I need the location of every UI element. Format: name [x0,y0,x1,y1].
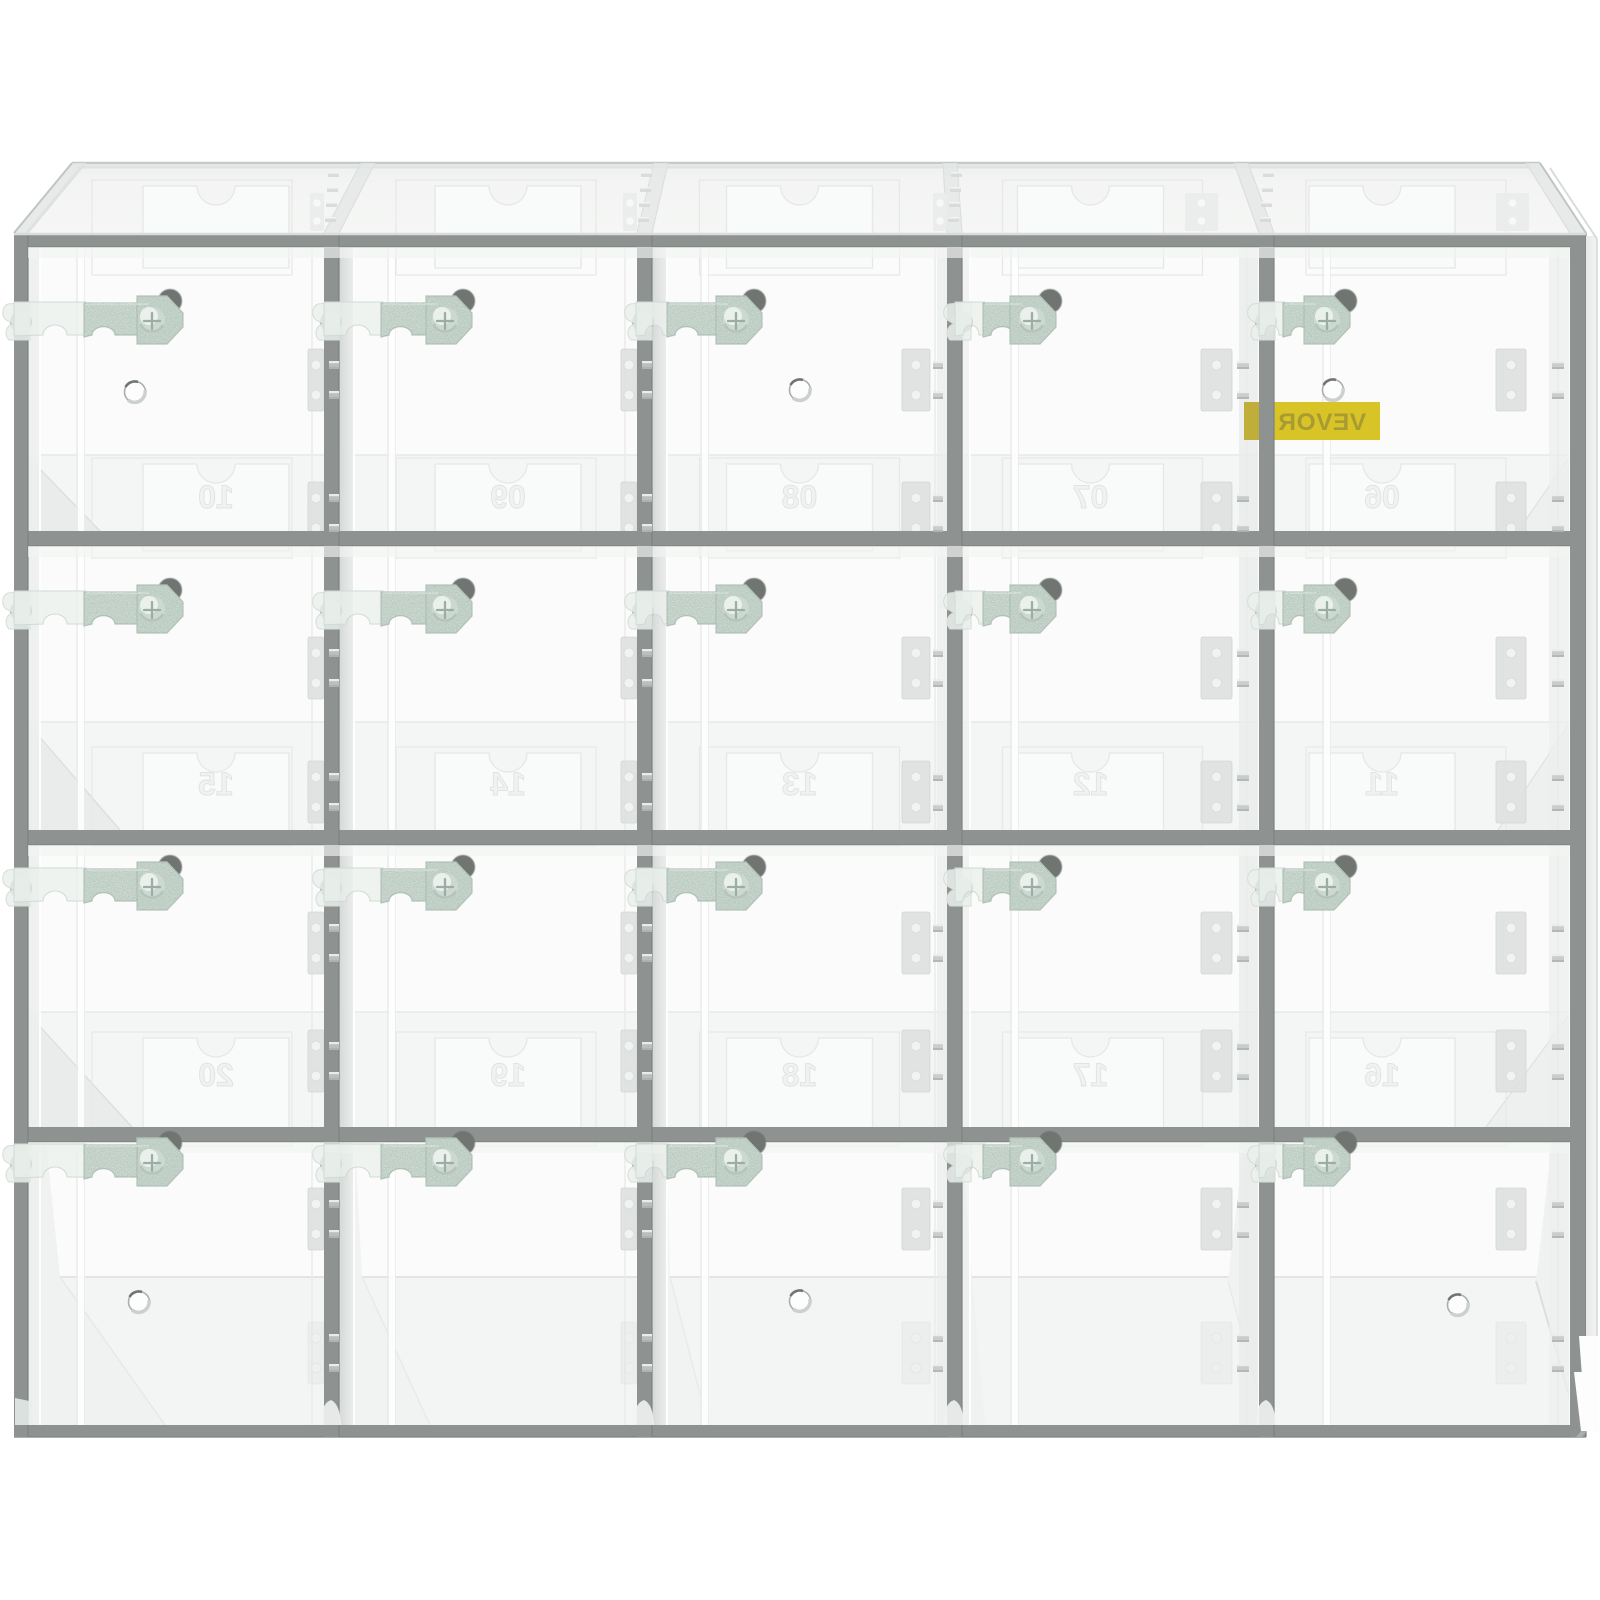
svg-text:06: 06 [1364,479,1400,515]
svg-text:16: 16 [1364,1057,1400,1093]
svg-text:13: 13 [782,766,818,802]
svg-text:VEVOR: VEVOR [1278,409,1366,436]
svg-text:11: 11 [1365,766,1399,802]
svg-text:17: 17 [1073,1057,1109,1093]
svg-text:08: 08 [782,479,818,515]
svg-text:19: 19 [490,1057,526,1093]
svg-text:12: 12 [1073,766,1109,802]
svg-text:20: 20 [198,1057,234,1093]
svg-text:15: 15 [198,766,234,802]
svg-text:09: 09 [490,479,526,515]
svg-text:14: 14 [490,766,526,802]
svg-text:18: 18 [782,1057,818,1093]
svg-text:10: 10 [198,479,234,515]
svg-text:07: 07 [1073,479,1109,515]
